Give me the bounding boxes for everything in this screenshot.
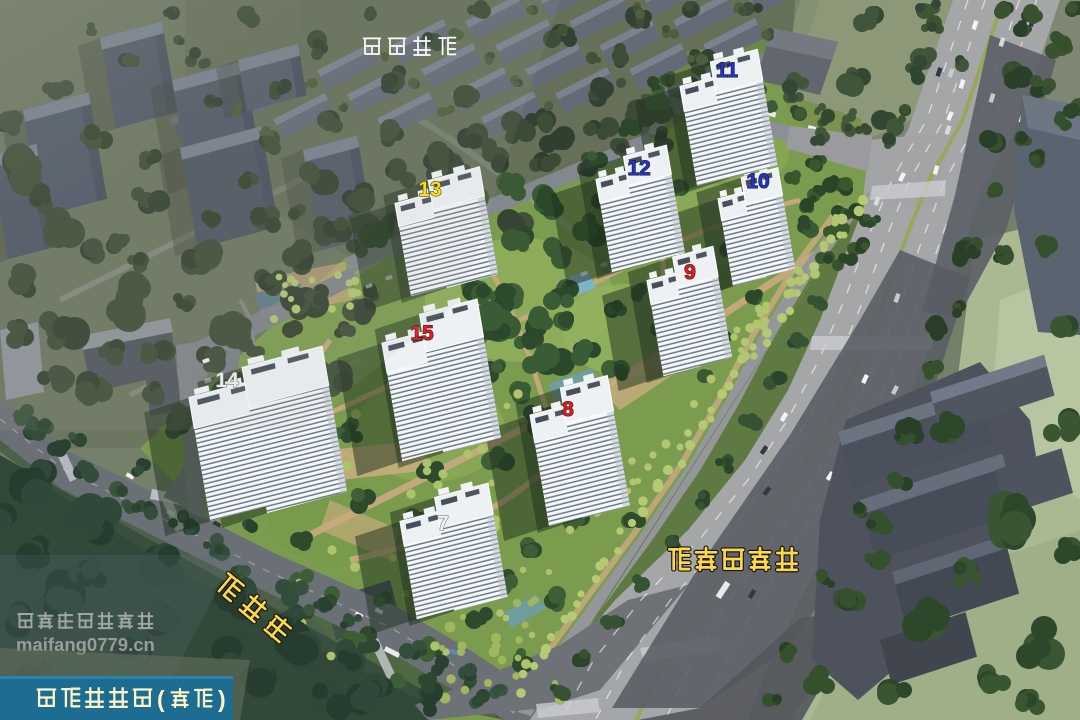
svg-text:9: 9 bbox=[684, 261, 696, 284]
svg-text:): ) bbox=[218, 686, 226, 712]
svg-text:8: 8 bbox=[562, 398, 574, 421]
svg-text:(: ( bbox=[157, 686, 165, 712]
svg-text:11: 11 bbox=[716, 59, 739, 82]
svg-text:10: 10 bbox=[746, 170, 769, 193]
svg-text:7: 7 bbox=[437, 512, 449, 535]
svg-text:12: 12 bbox=[627, 157, 650, 180]
